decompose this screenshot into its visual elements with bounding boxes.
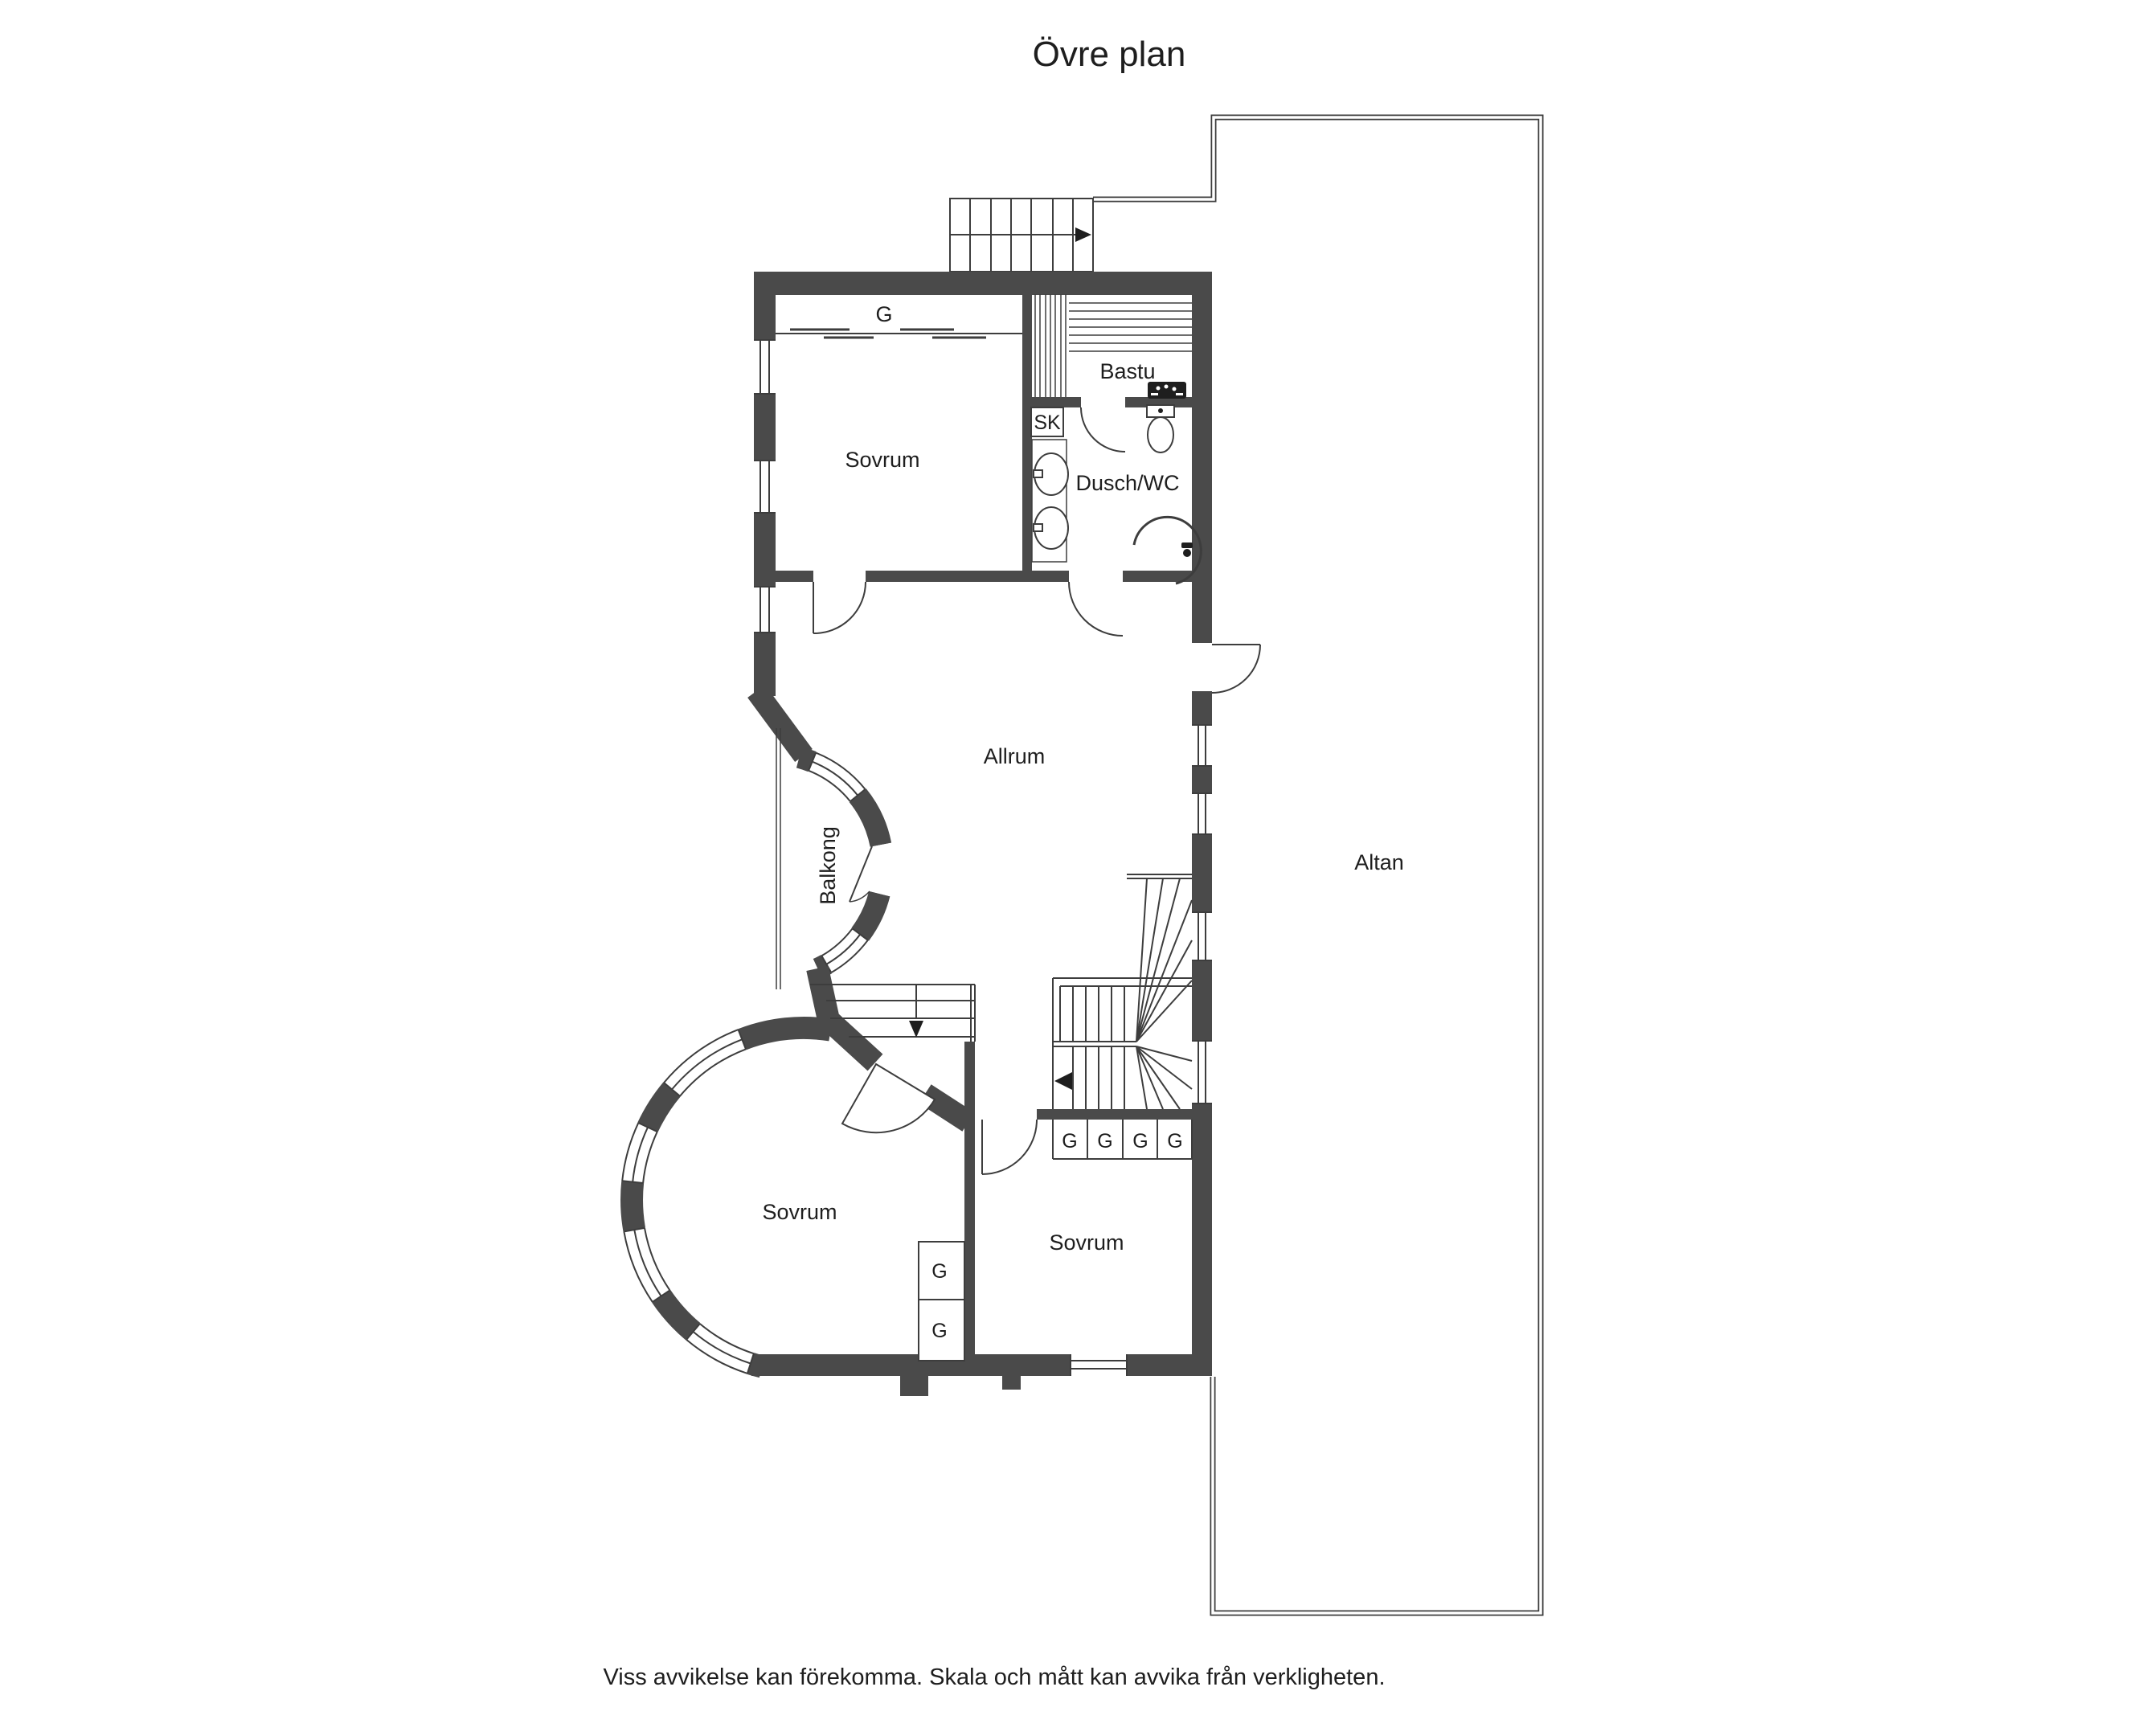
door-terrace (1212, 645, 1260, 693)
wall-junction (817, 968, 875, 1062)
terrace-outline (1093, 117, 1541, 1613)
vanity-sinks (1032, 440, 1068, 562)
label-bedroom-left: Sovrum (762, 1200, 837, 1224)
sauna-heater-icon (1148, 382, 1186, 399)
label-wardrobe-cell: G (1132, 1130, 1148, 1153)
curved-window (686, 1324, 754, 1374)
curved-window (622, 1123, 657, 1183)
stairs-down-arrow-icon (1054, 1072, 1072, 1090)
interior-walls (776, 291, 1195, 1354)
label-sauna: Bastu (1099, 359, 1155, 383)
steps-down-arrow-icon (909, 1021, 923, 1038)
chimney-stub (900, 1376, 928, 1396)
label-balcony: Balkong (816, 826, 840, 905)
chimney-stub (1002, 1376, 1021, 1390)
balcony-curved-wall (799, 753, 882, 973)
window (754, 340, 776, 394)
label-wardrobe-top: G (875, 302, 892, 326)
footer-disclaimer: Viss avvikelse kan förekomma. Skala och … (603, 1664, 1385, 1690)
interior-staircase (1053, 874, 1192, 1109)
label-wardrobe-cell: G (931, 1320, 947, 1342)
exterior-stairs (950, 199, 1093, 272)
label-living-room: Allrum (984, 744, 1046, 768)
door-bedroom-top (813, 582, 866, 633)
label-sk-closet: SK (1034, 411, 1061, 434)
window (1071, 1354, 1127, 1376)
curved-window (664, 1030, 746, 1096)
door-bedroom-right (982, 1120, 1037, 1174)
label-wardrobe-cell: G (1097, 1130, 1112, 1153)
window (1192, 912, 1212, 960)
label-wardrobe-cell: G (1062, 1130, 1077, 1153)
label-bedroom-top: Sovrum (845, 448, 919, 472)
floor-plan-drawing: Övre plan G Sovrum Bastu SK Dusch/WC All… (0, 0, 2129, 1736)
wardrobe-band (776, 330, 1022, 338)
floor-plan-page: Övre plan G Sovrum Bastu SK Dusch/WC All… (0, 0, 2129, 1736)
label-terrace: Altan (1354, 850, 1404, 874)
label-shower-wc: Dusch/WC (1075, 471, 1179, 495)
balcony-door (850, 845, 882, 902)
door-bathroom (1069, 582, 1123, 636)
label-wardrobe-cell: G (931, 1260, 947, 1283)
label-wardrobe-cell: G (1167, 1130, 1182, 1153)
page-title: Övre plan (1033, 35, 1186, 74)
label-bedroom-right: Sovrum (1049, 1230, 1124, 1255)
window (1192, 725, 1212, 766)
window (754, 587, 776, 633)
balcony-railing (776, 728, 780, 989)
toilet-icon (1147, 405, 1174, 452)
window (1192, 1041, 1212, 1103)
door-bedroom-left (842, 1064, 935, 1132)
window (754, 461, 776, 513)
window (1192, 793, 1212, 834)
balcony-curved-window (821, 928, 868, 972)
curved-window (624, 1228, 669, 1302)
balcony-curved-window (809, 753, 865, 802)
door-sauna (1081, 407, 1125, 452)
